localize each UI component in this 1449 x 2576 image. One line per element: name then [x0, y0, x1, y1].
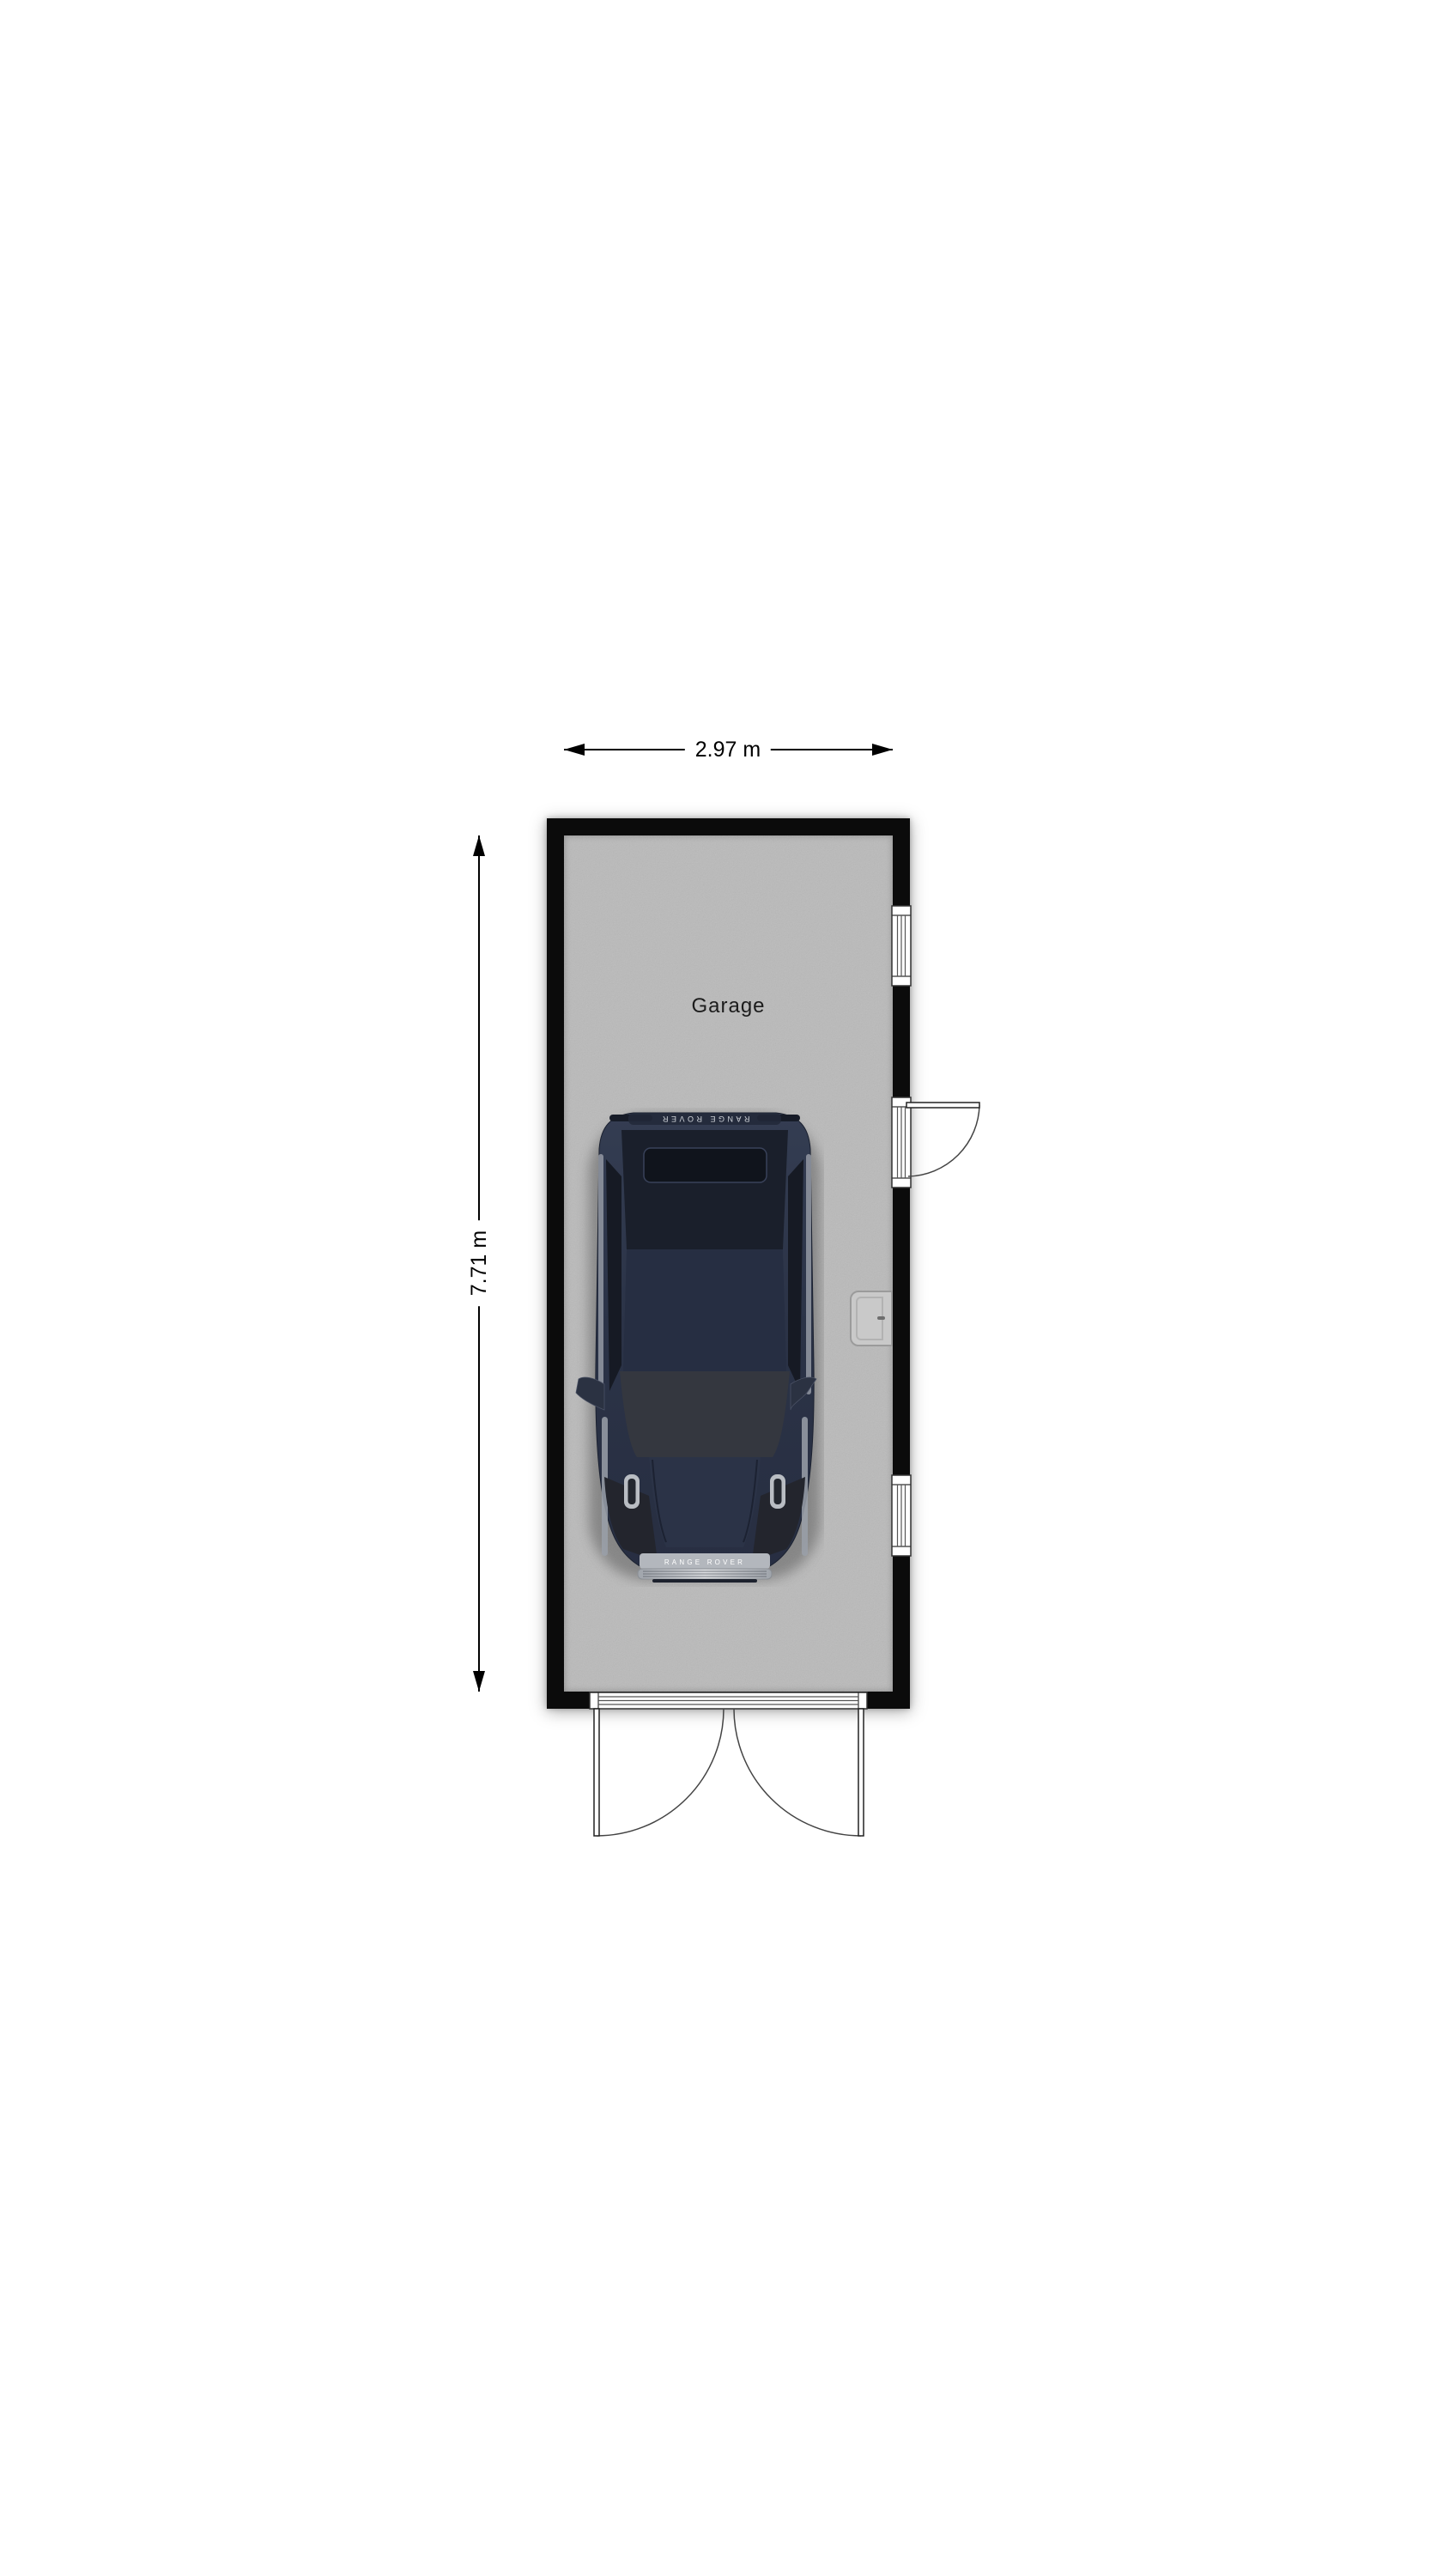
side-door-swing-arc: [908, 1105, 979, 1176]
side-door-leaf: [906, 1103, 979, 1108]
side-door-icon: [892, 1097, 979, 1188]
double-door-leaf-left: [594, 1709, 599, 1836]
room-label: Garage: [564, 994, 893, 1018]
plan-symbols-overlay: [0, 0, 1449, 2576]
double-door-swing-arc-right: [734, 1709, 861, 1836]
floorplan-canvas: RANGE ROVER RANGE ROVER: [0, 0, 1449, 2576]
window-lower-icon: [892, 1475, 911, 1556]
double-door-swing-arc-left: [597, 1709, 724, 1836]
double-door-leaf-right: [858, 1709, 864, 1836]
width-dimension-label: 2.97 m: [685, 735, 771, 764]
double-door-icon: [590, 1692, 867, 1836]
window-upper-icon: [892, 906, 911, 986]
height-dimension-label: 7.71 m: [464, 1220, 494, 1306]
